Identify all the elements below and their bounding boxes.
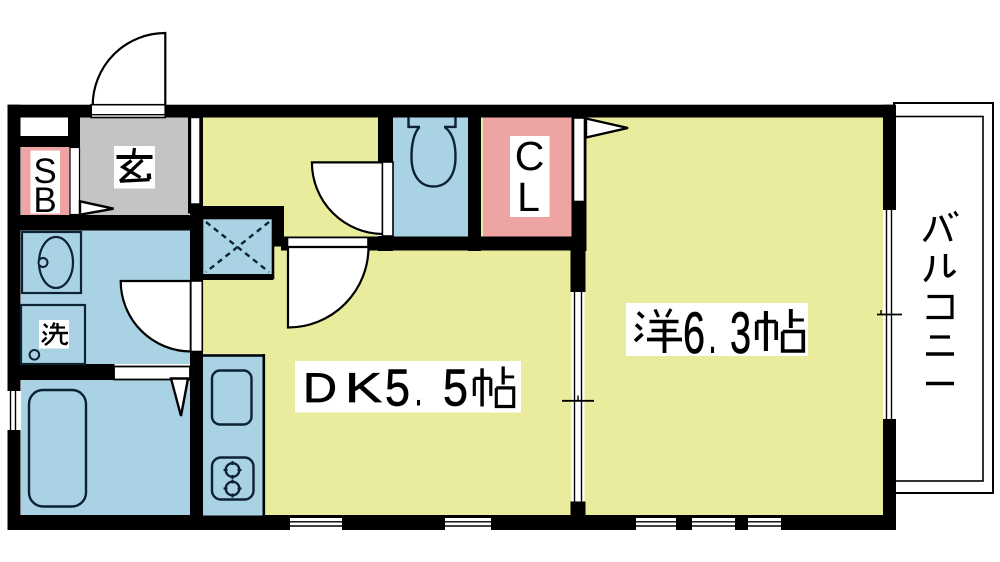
svg-text:.: .: [708, 301, 717, 366]
svg-text:C: C: [515, 133, 545, 179]
svg-text:6: 6: [683, 301, 705, 366]
svg-text:.: .: [414, 360, 423, 418]
svg-text:5: 5: [443, 360, 468, 418]
svg-text:K: K: [345, 364, 382, 411]
svg-text:B: B: [33, 181, 56, 220]
svg-text:5: 5: [385, 360, 410, 418]
svg-text:L: L: [517, 174, 540, 220]
svg-text:D: D: [303, 364, 337, 411]
svg-text:3: 3: [730, 301, 751, 366]
